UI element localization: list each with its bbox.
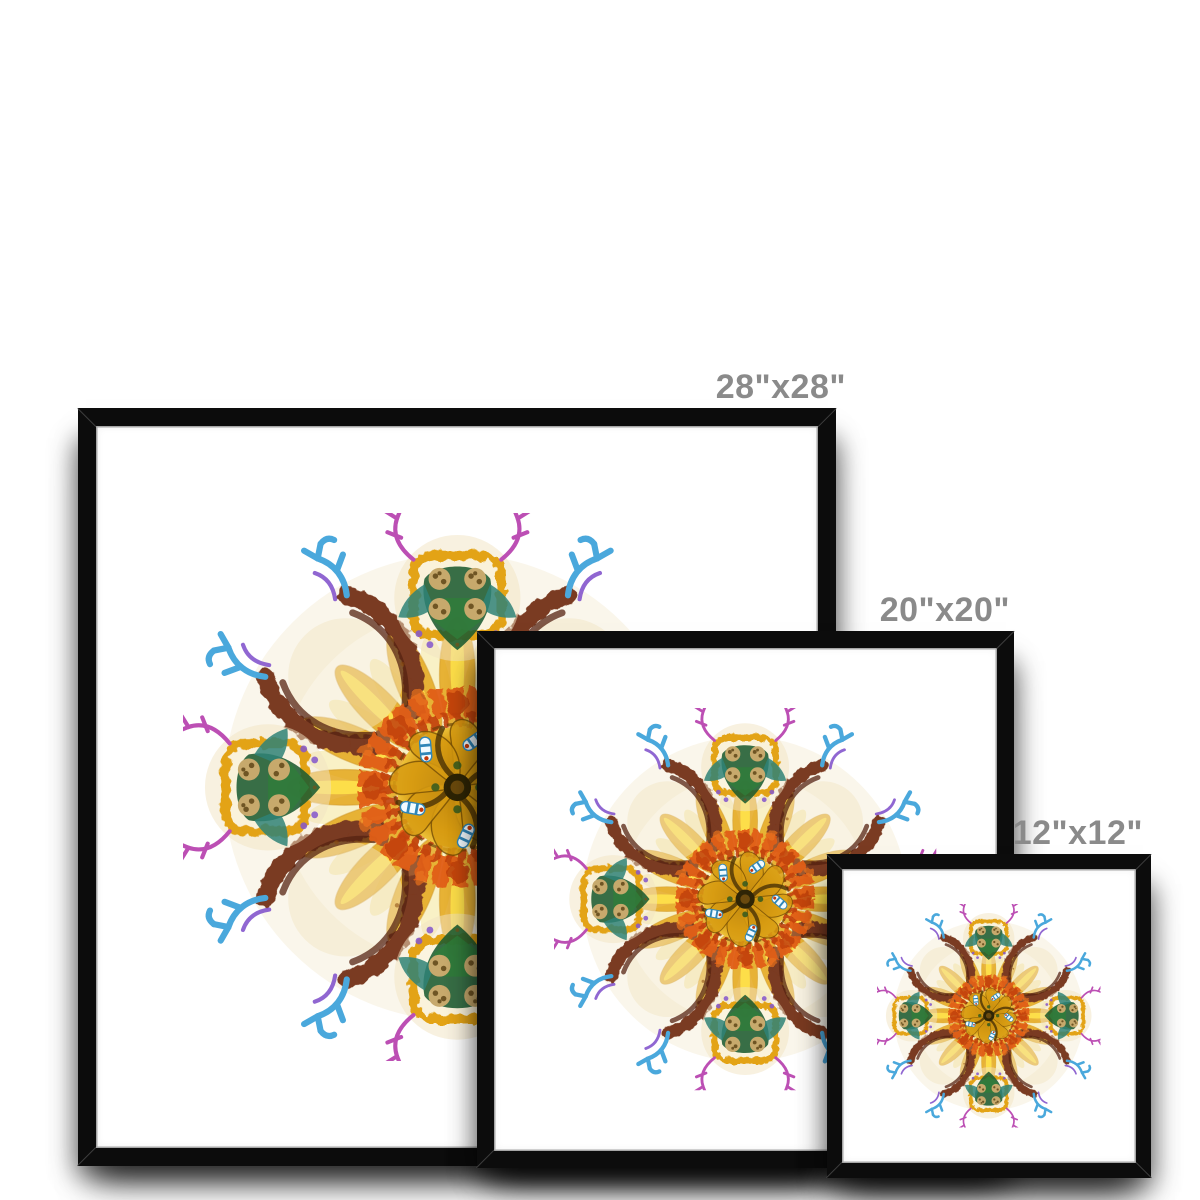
size-label-12x12: 12"x12" [1013, 816, 1143, 850]
mandala-artwork-12x12 [877, 904, 1100, 1127]
frame-miter-top-right [818, 408, 837, 427]
mockup-stage: 28"x28" 20"x20" 12"x12" [0, 0, 1200, 1200]
frame-miter-top-left [476, 631, 494, 649]
frame-miter-bottom-left [476, 1150, 494, 1168]
frame-12x12 [827, 854, 1151, 1178]
frame-miter-bottom-left [826, 1162, 842, 1178]
frame-miter-top-left [77, 408, 96, 427]
size-label-28x28: 28"x28" [716, 370, 846, 404]
frame-miter-top-left [826, 854, 842, 870]
frame-miter-top-right [1136, 854, 1152, 870]
size-label-20x20: 20"x20" [880, 593, 1010, 627]
frame-miter-top-right [997, 631, 1015, 649]
frame-miter-bottom-left [77, 1147, 96, 1166]
frame-miter-bottom-right [1136, 1162, 1152, 1178]
framed-print-12x12: 12"x12" [827, 854, 1151, 1178]
